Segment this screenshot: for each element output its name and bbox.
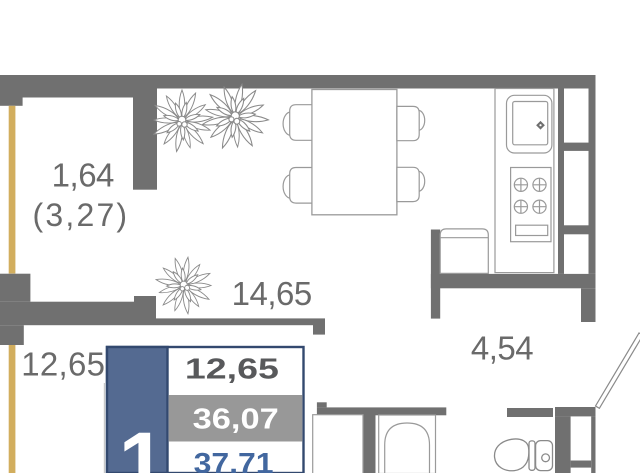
svg-text:36,07: 36,07 (193, 404, 279, 436)
svg-text:(3,27): (3,27) (33, 197, 130, 233)
svg-text:1: 1 (119, 415, 166, 473)
svg-text:12,65: 12,65 (21, 346, 105, 383)
svg-text:4,54: 4,54 (471, 329, 533, 366)
svg-text:37,71: 37,71 (194, 448, 274, 473)
svg-text:12,65: 12,65 (185, 354, 279, 386)
svg-text:14,65: 14,65 (232, 275, 312, 312)
svg-text:1,64: 1,64 (52, 156, 114, 193)
